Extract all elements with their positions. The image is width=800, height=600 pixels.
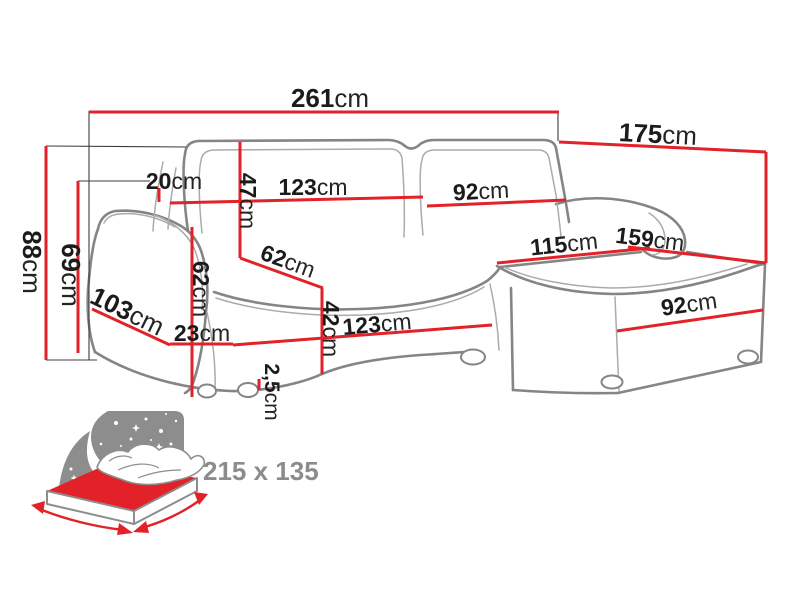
dim-total-width-label: 261cm [291,83,369,113]
dim-seat-width-top-label: 123cm [278,174,347,200]
foot [198,385,216,398]
foot [238,383,258,397]
dim-leg-height-label: 2,5cm [260,363,283,420]
dim-seat-height-label: 42cm [318,301,344,357]
dim-backrest-height-label: 47cm [235,173,261,229]
sleeping-area-size-label: 215 x 135 [203,456,319,486]
dim-chaise-front-width-label: 92cm [659,287,718,321]
chaise-bottom-right-edge [618,362,761,393]
dim-armrest-bottom-width-label: 23cm [174,320,230,346]
armrest-top-inner-line [104,214,175,227]
projection-height-top [46,146,186,147]
dim-total-height-label: 88cm [17,230,47,294]
foot [738,351,758,364]
dimension-lines [46,112,766,397]
chaise-left-edge [511,288,513,390]
dim-total-depth-label: 175cm [618,117,698,151]
seat-face-right-edge [490,284,499,350]
seat-front-edge [214,267,500,309]
dim-seat-width-front-label: 123cm [341,308,412,340]
sleeping-area-icon: 215 x 135 [31,411,319,535]
foot [461,350,485,365]
dim-back-cushion-right-label: 92cm [452,177,510,206]
sofa-dimension-drawing: 261cm 175cm 88cm 69cm 20cm 47cm 123cm 92… [0,0,800,600]
dim-armrest-height-label: 69cm [56,243,86,307]
chaise-right-edge [761,265,765,362]
chaise-bottom-left-edge [513,390,618,393]
dim-armrest-front-height-label: 62cm [188,261,214,317]
dim-armrest-top-width-label: 20cm [146,168,202,194]
dim-side-depth-label: 103cm [86,281,169,342]
dimension-diagram: 261cm 175cm 88cm 69cm 20cm 47cm 123cm 92… [0,0,800,600]
foot [602,376,623,389]
